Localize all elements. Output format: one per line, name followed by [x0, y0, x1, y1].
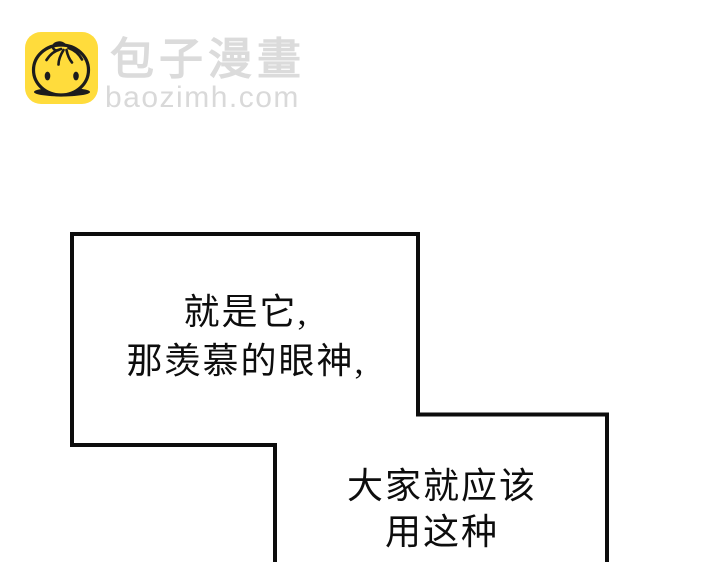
speech-bubble-2-text: 大家就应该 用这种	[277, 463, 607, 555]
speech-bubble-1-text: 就是它, 那羡慕的眼神,	[74, 288, 418, 386]
speech-line: 那羡慕的眼神,	[74, 337, 418, 386]
comic-page: 包子漫畫 baozimh.com 就是它, 那羡慕的眼神, 大家就应该 用这种	[0, 0, 720, 562]
speech-line: 就是它,	[74, 288, 418, 337]
speech-line: 大家就应该	[277, 463, 607, 509]
speech-line: 用这种	[277, 509, 607, 555]
